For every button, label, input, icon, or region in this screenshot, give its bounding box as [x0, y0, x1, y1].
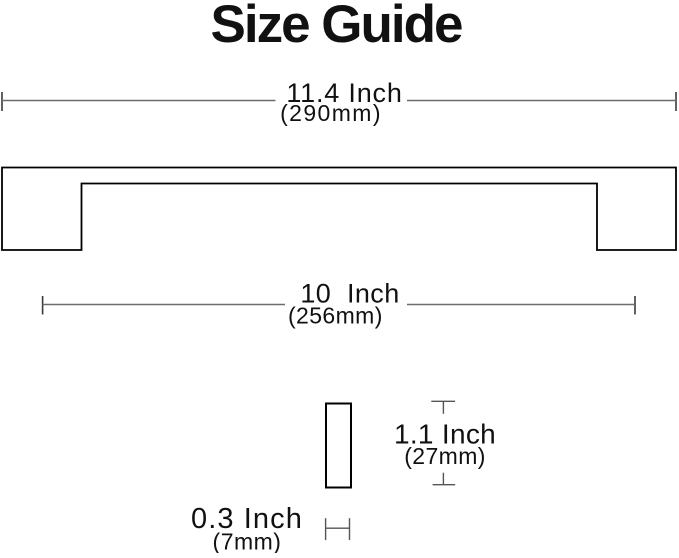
svg-text:(256mm): (256mm) — [288, 303, 383, 329]
svg-text:Size Guide: Size Guide — [211, 0, 462, 54]
svg-text:(27mm): (27mm) — [404, 443, 486, 469]
svg-text:(290mm): (290mm) — [280, 100, 382, 126]
svg-text:(7mm): (7mm) — [213, 529, 282, 554]
